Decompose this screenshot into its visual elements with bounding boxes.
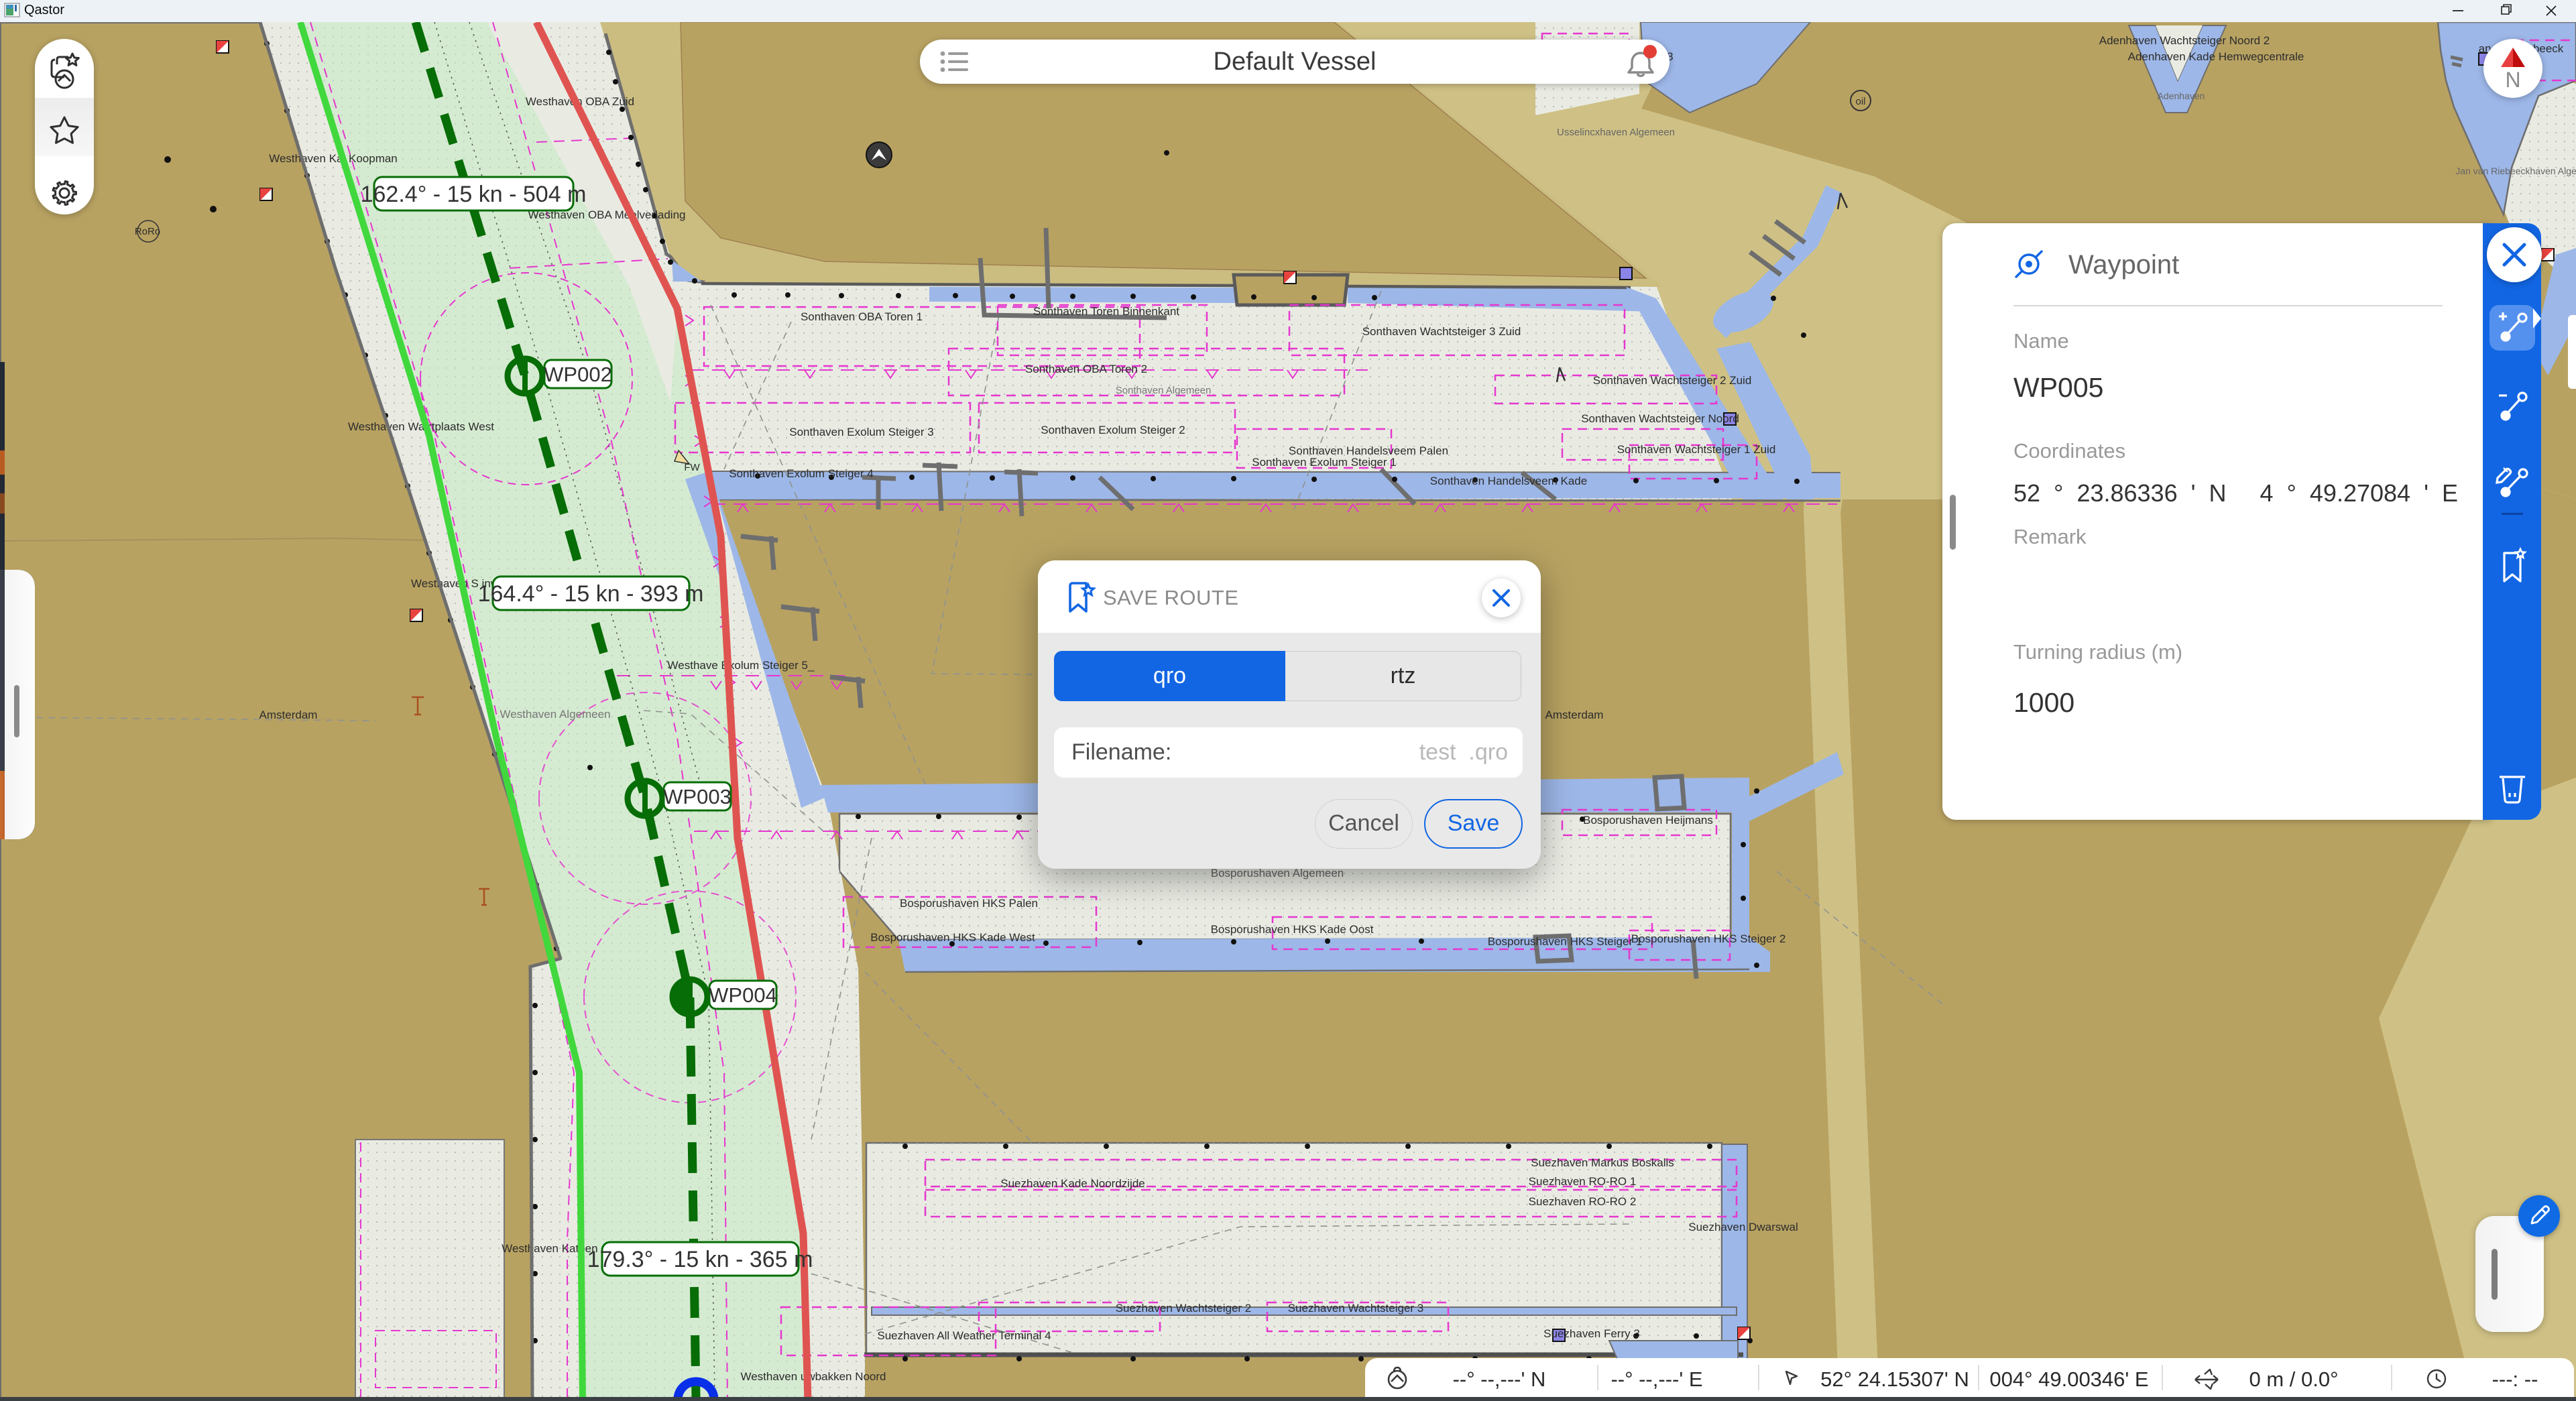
svg-text:Westhaven uwbakken Noord: Westhaven uwbakken Noord [740,1370,886,1383]
svg-text:Adenhaven Wachtsteiger Noord 2: Adenhaven Wachtsteiger Noord 2 [2099,34,2270,47]
svg-text:Bosporushaven HKS Steiger 2: Bosporushaven HKS Steiger 2 [1631,932,1786,945]
svg-text:0 m / 0.0°: 0 m / 0.0° [2249,1367,2338,1391]
svg-text:Suezhaven Wachtsteiger 2: Suezhaven Wachtsteiger 2 [1116,1302,1252,1315]
svg-text:Bosporushaven HKS Kade Oost: Bosporushaven HKS Kade Oost [1211,923,1374,936]
svg-text:Sonthaven Wachtsteiger Noord: Sonthaven Wachtsteiger Noord [1581,412,1739,425]
svg-text:Jan van Riebeeckhaven Algemeen: Jan van Riebeeckhaven Algemeen [2455,166,2576,176]
svg-text:N: N [2505,68,2520,92]
svg-text:Sonthaven OBA Toren 1: Sonthaven OBA Toren 1 [801,310,923,323]
svg-text:WP004: WP004 [709,983,777,1007]
svg-text:Westhaven Wa rtplaats West: Westhaven Wa rtplaats West [348,420,494,433]
svg-text:Westhaven Algemeen: Westhaven Algemeen [500,708,610,721]
svg-text:Sonthaven Toren Binnenkant: Sonthaven Toren Binnenkant [1033,305,1179,318]
svg-text:WP002: WP002 [544,363,612,386]
svg-text:Westhave Exolum Steiger 5_: Westhave Exolum Steiger 5_ [668,659,815,672]
svg-text:Sonthaven OBA Toren 2: Sonthaven OBA Toren 2 [1025,363,1147,375]
svg-text:Bosporushaven HKS Kade West: Bosporushaven HKS Kade West [870,931,1035,944]
svg-text:--° --,---' E: --° --,---' E [1611,1367,1702,1391]
svg-text:52° 24.15307' N: 52° 24.15307' N [1820,1367,1969,1391]
svg-text:164.4° - 15 kn - 393 m: 164.4° - 15 kn - 393 m [478,581,704,607]
svg-text:Suezhaven Dwarswal: Suezhaven Dwarswal [1688,1221,1798,1233]
svg-text:Suezhaven All Weather Terminal: Suezhaven All Weather Terminal 4 [877,1329,1051,1342]
svg-text:Sonthaven Wachtsteiger 1 Zuid: Sonthaven Wachtsteiger 1 Zuid [1617,443,1776,456]
svg-text:Suezhaven RO-RO 2: Suezhaven RO-RO 2 [1529,1195,1637,1208]
svg-text:Sonthaven Exolum Steiger 4: Sonthaven Exolum Steiger 4 [729,467,873,480]
svg-text:Sonthaven Wachtsteiger 3 Zuid: Sonthaven Wachtsteiger 3 Zuid [1362,325,1521,338]
svg-text:Sonthaven Handelsveem Palen: Sonthaven Handelsveem Palen [1289,444,1448,457]
svg-text:Suezhaven Kade Noordzijde: Suezhaven Kade Noordzijde [1000,1177,1145,1190]
svg-text:--° --,---' N: --° --,---' N [1453,1367,1546,1391]
svg-text:004° 49.00346' E: 004° 49.00346' E [1989,1367,2148,1391]
svg-text:Westhaven Kai Koopman: Westhaven Kai Koopman [269,152,398,165]
svg-text:179.3° - 15 kn - 365 m: 179.3° - 15 kn - 365 m [587,1247,813,1272]
svg-text:Adenhaven Kade Hemwegcentrale: Adenhaven Kade Hemwegcentrale [2128,50,2304,63]
svg-text:Bosporushaven HKS Palen: Bosporushaven HKS Palen [900,897,1038,910]
svg-text:---: --: ---: -- [2492,1367,2538,1391]
svg-text:oil: oil [1855,96,1865,107]
svg-text:Sonthaven Exolum Steiger 1: Sonthaven Exolum Steiger 1 [1252,456,1396,469]
svg-text:Amsterdam: Amsterdam [259,709,318,721]
svg-text:Sonthaven Wachtsteiger 2 Zuid: Sonthaven Wachtsteiger 2 Zuid [1593,374,1752,387]
svg-text:Suezhaven RO-RO 1: Suezhaven RO-RO 1 [1529,1175,1637,1188]
svg-text:FW: FW [684,462,700,473]
svg-text:Usselincxhaven Algemeen: Usselincxhaven Algemeen [1557,127,1675,138]
svg-text:162.4° - 15 kn - 504 m: 162.4° - 15 kn - 504 m [361,182,587,207]
svg-text:Suezhaven Wachtsteiger 3: Suezhaven Wachtsteiger 3 [1288,1302,1424,1315]
svg-text:Bosporushaven Heijmans: Bosporushaven Heijmans [1583,814,1713,827]
svg-text:Adenhaven: Adenhaven [2158,90,2205,101]
svg-text:Sonthaven Handelsveem Kade: Sonthaven Handelsveem Kade [1430,475,1587,487]
svg-text:Suezhaven Markus Boskalis: Suezhaven Markus Boskalis [1531,1156,1674,1169]
svg-text:Bosporushaven HKS Steiger 1: Bosporushaven HKS Steiger 1 [1488,935,1643,948]
svg-text:Sonthaven Algemeen: Sonthaven Algemeen [1116,385,1212,396]
svg-text:Suezhaven Ferry 3: Suezhaven Ferry 3 [1543,1327,1640,1340]
svg-text:WP003: WP003 [663,785,731,808]
svg-text:Sonthaven Exolum Steiger 2: Sonthaven Exolum Steiger 2 [1041,424,1185,436]
svg-text:Amsterdam: Amsterdam [1545,709,1604,721]
svg-text:Sonthaven Exolum Steiger 3: Sonthaven Exolum Steiger 3 [789,426,933,438]
